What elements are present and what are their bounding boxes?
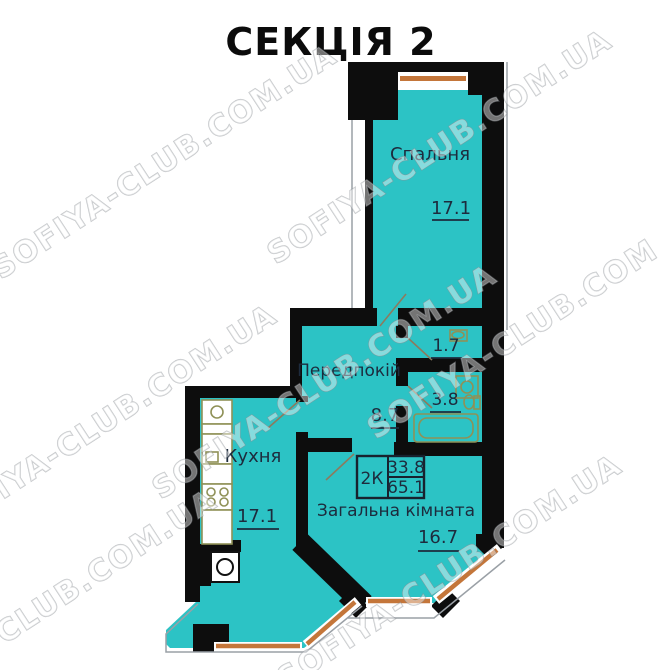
living-area: 16.7 — [418, 527, 458, 548]
total-area-value: 65.1 — [387, 478, 425, 498]
bedroom-window — [400, 76, 466, 81]
sink-icon — [202, 400, 232, 424]
living-area-value: 33.8 — [387, 458, 425, 478]
living-label: Загальна кімната — [317, 501, 475, 521]
wc-area: 1.7 — [432, 336, 459, 356]
kitchen-area: 17.1 — [237, 506, 277, 527]
apartment-type: 2К — [361, 469, 384, 489]
vent-shaft-icon — [211, 552, 239, 582]
floor-plan: СЕКЦІЯ 2 — [0, 0, 659, 670]
bedroom-area: 17.1 — [431, 198, 471, 219]
